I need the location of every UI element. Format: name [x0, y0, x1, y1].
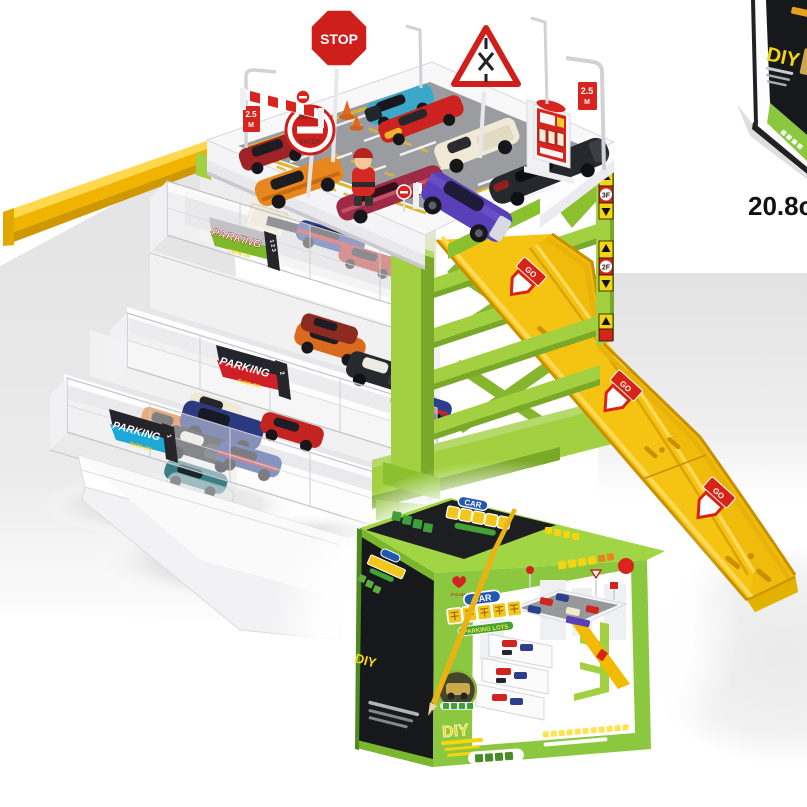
svg-text:2.5: 2.5	[245, 110, 257, 119]
svg-text:2F: 2F	[602, 265, 611, 272]
svg-text:20.8cm: 20.8cm	[748, 191, 807, 221]
svg-text:M: M	[248, 122, 254, 129]
svg-text:3F: 3F	[602, 193, 611, 200]
svg-text:DIY: DIY	[441, 722, 469, 741]
svg-text:STOP: STOP	[320, 31, 358, 47]
svg-text:ENTER: ENTER	[300, 140, 321, 146]
svg-text:M: M	[584, 99, 590, 106]
svg-text:2.5: 2.5	[581, 86, 594, 96]
